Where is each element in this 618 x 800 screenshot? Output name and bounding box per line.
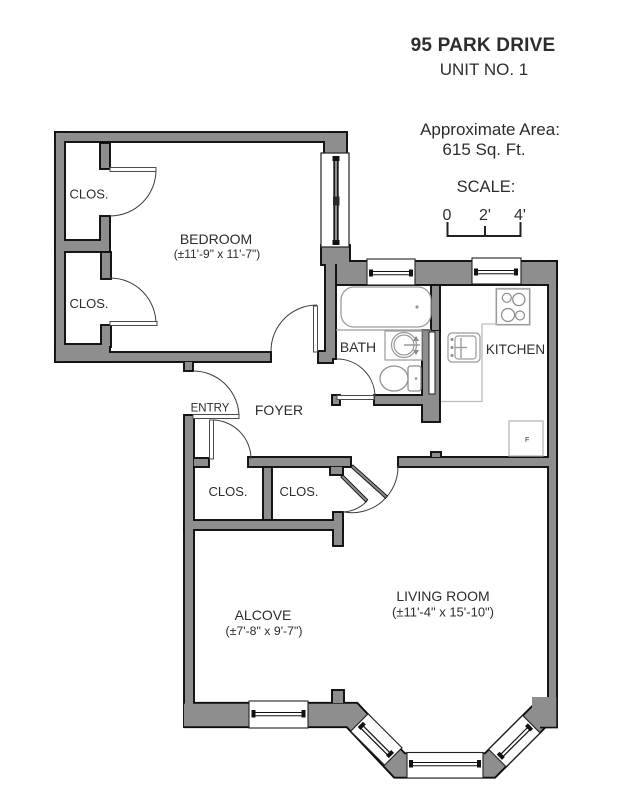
svg-text:ENTRY: ENTRY xyxy=(191,403,230,415)
svg-text:BEDROOM: BEDROOM xyxy=(180,231,252,247)
svg-text:KITCHEN: KITCHEN xyxy=(486,342,545,357)
svg-text:95 PARK DRIVE: 95 PARK DRIVE xyxy=(411,35,556,56)
svg-text:FOYER: FOYER xyxy=(255,402,303,418)
svg-text:(±7'-8" x 9'-7"): (±7'-8" x 9'-7") xyxy=(226,624,303,638)
svg-text:BATH: BATH xyxy=(340,339,376,355)
svg-text:CLOS.: CLOS. xyxy=(69,296,108,311)
svg-text:CLOS.: CLOS. xyxy=(279,484,318,499)
svg-text:UNIT NO. 1: UNIT NO. 1 xyxy=(440,60,528,79)
svg-text:4': 4' xyxy=(514,207,526,224)
svg-text:(±11'-9" x 11'-7"): (±11'-9" x 11'-7") xyxy=(174,247,261,261)
svg-text:ALCOVE: ALCOVE xyxy=(235,607,292,623)
svg-text:(±11'-4" x 15'-10"): (±11'-4" x 15'-10") xyxy=(392,605,494,620)
svg-text:LIVING ROOM: LIVING ROOM xyxy=(396,588,489,604)
svg-text:CLOS.: CLOS. xyxy=(69,187,108,202)
svg-text:2': 2' xyxy=(479,207,491,224)
svg-text:SCALE:: SCALE: xyxy=(457,178,516,196)
svg-text:CLOS.: CLOS. xyxy=(208,484,247,499)
svg-text:Approximate Area:: Approximate Area: xyxy=(420,120,560,139)
svg-text:F: F xyxy=(525,437,529,444)
svg-text:615 Sq. Ft.: 615 Sq. Ft. xyxy=(442,140,525,159)
svg-text:0: 0 xyxy=(443,207,452,224)
